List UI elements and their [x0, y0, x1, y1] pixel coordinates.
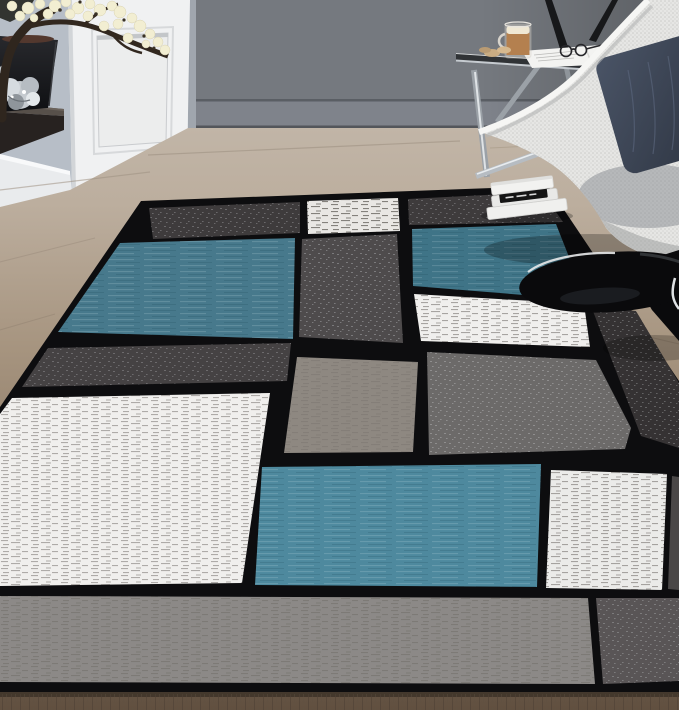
rug-texture: [0, 393, 270, 586]
rug-texture: [22, 343, 291, 387]
rug-texture: [546, 470, 667, 590]
rug-texture: [596, 598, 679, 684]
rug-texture: [284, 357, 418, 453]
rug-texture: [149, 202, 300, 239]
rug-texture: [307, 198, 400, 234]
rug-texture: [255, 464, 541, 587]
rug-texture: [299, 234, 403, 343]
floor-grain: [0, 694, 679, 710]
room-photo: [0, 0, 679, 710]
rug-texture: [0, 596, 595, 684]
